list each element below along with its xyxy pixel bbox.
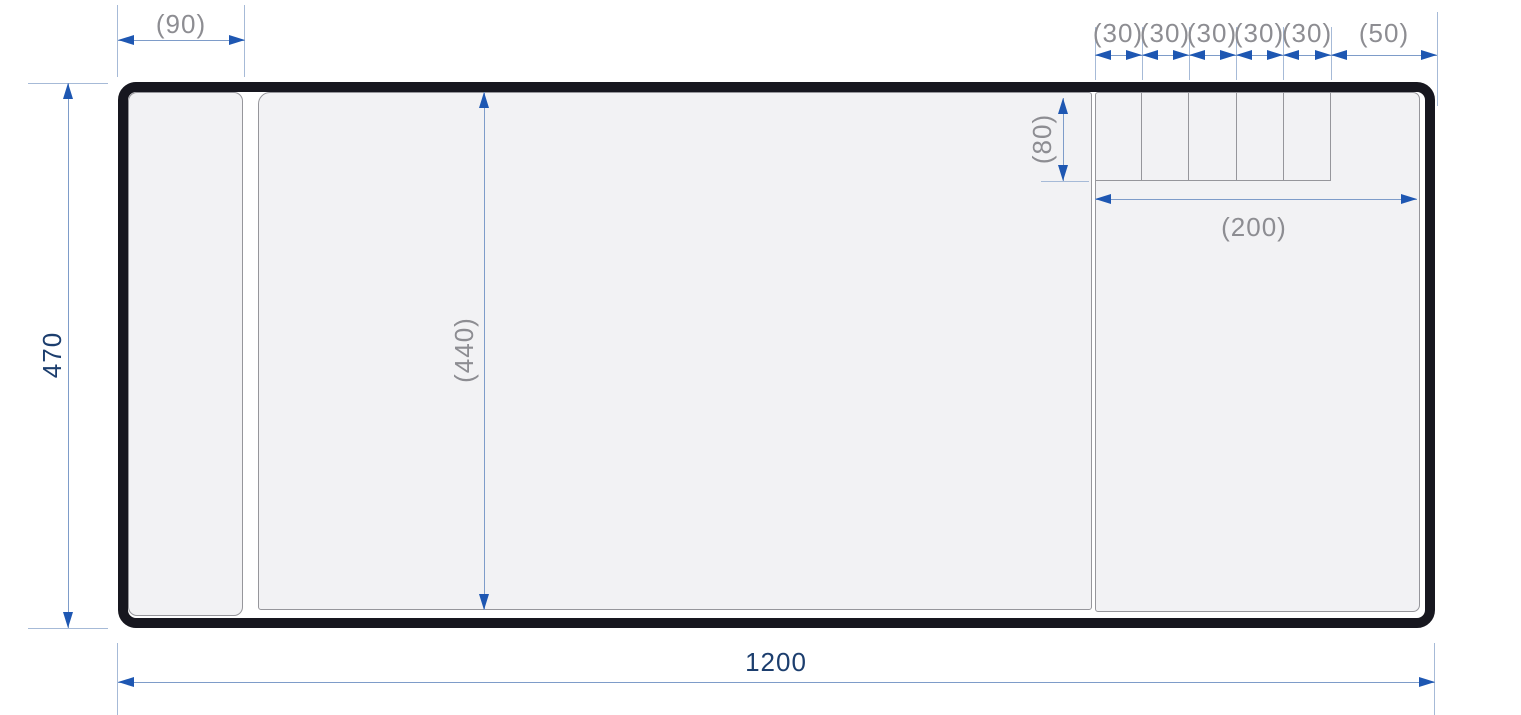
arrowhead-right: [1421, 50, 1437, 60]
arrowhead-left: [118, 35, 134, 45]
arrowhead-left: [1236, 50, 1252, 60]
arrowhead-up: [1058, 98, 1068, 114]
dimension-line: [1095, 199, 1417, 200]
arrowhead-right: [1126, 50, 1142, 60]
arrowhead-right: [1419, 677, 1435, 687]
arrowhead-left: [1095, 50, 1111, 60]
arrowhead-left: [1189, 50, 1205, 60]
extension-line: [28, 628, 108, 629]
dim-label-90: (90): [156, 11, 206, 37]
arrowhead-right: [1220, 50, 1236, 60]
arrowhead-up: [63, 83, 73, 99]
arrowhead-left: [1095, 194, 1111, 204]
dimension-line: [118, 40, 245, 41]
dim-label-30: (30): [1093, 20, 1143, 46]
main-basin-panel: [258, 92, 1092, 610]
compartment-cell: [1095, 93, 1142, 180]
compartment-cell: [1142, 93, 1189, 180]
arrowhead-left: [118, 677, 134, 687]
dim-label-50: (50): [1359, 20, 1409, 46]
arrowhead-left: [1142, 50, 1158, 60]
arrowhead-right: [1267, 50, 1283, 60]
compartment-cell: [1237, 93, 1284, 180]
dim-label-30: (30): [1282, 20, 1332, 46]
compartment-cell: [1189, 93, 1236, 180]
dim-label-440: (440): [451, 317, 477, 383]
dim-label-30: (30): [1187, 20, 1237, 46]
dim-label-1200: 1200: [745, 649, 807, 675]
arrowhead-down: [479, 594, 489, 610]
dim-label-470: 470: [39, 332, 65, 378]
arrowhead-down: [1058, 165, 1068, 181]
compartment-cell: [1284, 93, 1330, 180]
extension-line: [1437, 12, 1438, 106]
dim-label-200: (200): [1221, 214, 1287, 240]
compartment-row: [1095, 93, 1331, 181]
dimension-line: [118, 682, 1435, 683]
dim-label-30: (30): [1234, 20, 1284, 46]
arrowhead-right: [229, 35, 245, 45]
extension-line: [1041, 181, 1089, 182]
arrowhead-left: [1331, 50, 1347, 60]
arrowhead-right: [1401, 194, 1417, 204]
arrowhead-down: [63, 612, 73, 628]
left-section-panel: [128, 92, 243, 616]
technical-drawing-canvas: (90) (30) (30) (30) (30) (30) (50): [0, 0, 1521, 715]
dim-label-80: (80): [1029, 114, 1055, 164]
arrowhead-left: [1283, 50, 1299, 60]
dimension-line: [484, 92, 485, 610]
arrowhead-right: [1173, 50, 1189, 60]
dim-label-30: (30): [1140, 20, 1190, 46]
arrowhead-right: [1315, 50, 1331, 60]
dimension-line: [68, 83, 69, 628]
arrowhead-up: [479, 92, 489, 108]
